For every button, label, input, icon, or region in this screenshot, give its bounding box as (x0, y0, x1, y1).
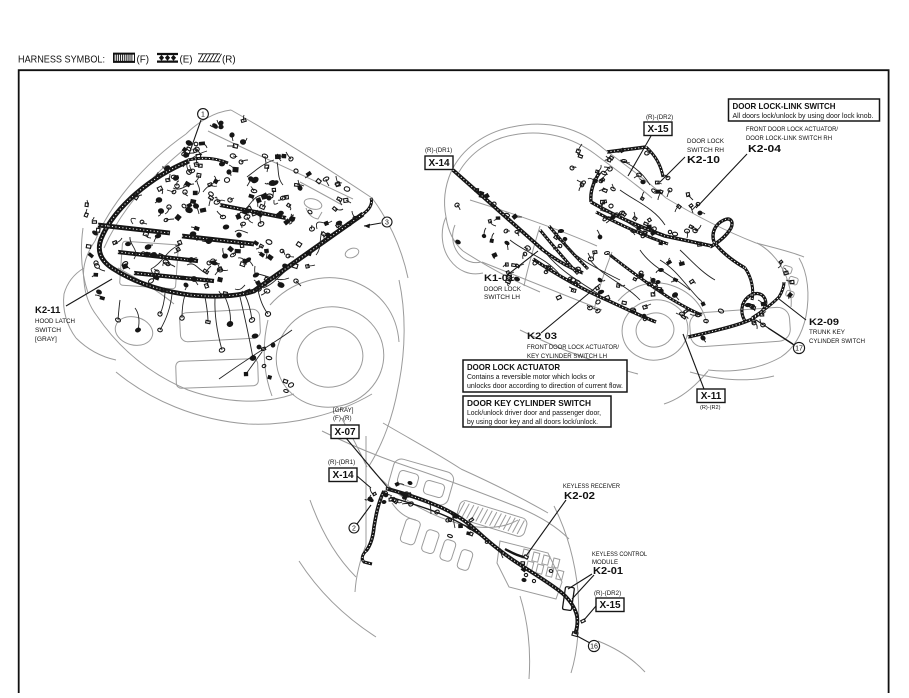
svg-text:(F)-(R): (F)-(R) (333, 415, 352, 422)
svg-text:FRONT DOOR LOCK ACTUATOR/: FRONT DOOR LOCK ACTUATOR/ (527, 344, 619, 351)
svg-text:K2-09: K2-09 (809, 317, 839, 328)
svg-text:HARNESS SYMBOL:: HARNESS SYMBOL: (18, 54, 105, 65)
svg-text:SWITCH RH: SWITCH RH (687, 147, 724, 154)
svg-text:K2-04: K2-04 (748, 143, 781, 155)
svg-text:KEYLESS RECEIVER: KEYLESS RECEIVER (563, 483, 620, 490)
svg-text:X-07: X-07 (334, 427, 356, 438)
svg-text:(R)-(DR1): (R)-(DR1) (425, 147, 452, 154)
svg-text:Contains a reversible motor wh: Contains a reversible motor which locks … (467, 374, 596, 381)
svg-text:2: 2 (352, 525, 356, 532)
svg-text:(R)-(R2): (R)-(R2) (700, 405, 721, 411)
svg-text:DOOR LOCK-LINK SWITCH: DOOR LOCK-LINK SWITCH (733, 102, 836, 111)
svg-text:K2 03: K2 03 (527, 331, 557, 342)
svg-text:[GRAY]: [GRAY] (333, 407, 354, 414)
svg-text:(R)-(DR1): (R)-(DR1) (328, 459, 355, 466)
svg-text:by using door key and all door: by using door key and all doors lock/unl… (467, 419, 598, 426)
svg-text:(R): (R) (222, 54, 236, 65)
svg-text:X-15: X-15 (647, 124, 669, 135)
svg-text:K2-11: K2-11 (35, 305, 61, 316)
svg-text:[GRAY]: [GRAY] (35, 336, 57, 343)
svg-text:17: 17 (795, 345, 803, 352)
svg-text:(F): (F) (137, 54, 150, 65)
svg-text:HOOD LATCH: HOOD LATCH (35, 318, 75, 325)
svg-text:DOOR LOCK-LINK SWITCH RH: DOOR LOCK-LINK SWITCH RH (746, 135, 832, 142)
svg-text:DOOR LOCK: DOOR LOCK (484, 286, 522, 293)
svg-text:DOOR LOCK: DOOR LOCK (687, 138, 725, 145)
svg-text:X-15: X-15 (599, 600, 621, 611)
svg-text:3: 3 (385, 219, 389, 226)
svg-text:SWITCH: SWITCH (35, 327, 61, 334)
svg-text:X-14: X-14 (428, 158, 450, 169)
svg-text:X-14: X-14 (332, 470, 354, 481)
svg-text:(R)-(DR2): (R)-(DR2) (646, 114, 673, 121)
svg-text:SWITCH LH: SWITCH LH (484, 294, 520, 301)
svg-text:All doors lock/unlock by using: All doors lock/unlock by using door lock… (733, 113, 874, 120)
svg-text:KEY CYLINDER SWITCH LH: KEY CYLINDER SWITCH LH (527, 353, 607, 360)
svg-text:CYLINDER SWITCH: CYLINDER SWITCH (809, 338, 865, 345)
svg-text:K1-01: K1-01 (484, 273, 515, 284)
svg-text:K2-01: K2-01 (593, 565, 623, 577)
svg-text:DOOR LOCK ACTUATOR: DOOR LOCK ACTUATOR (467, 363, 560, 372)
svg-text:(R)-(DR2): (R)-(DR2) (594, 590, 621, 597)
svg-text:DOOR KEY CYLINDER SWITCH: DOOR KEY CYLINDER SWITCH (467, 399, 591, 408)
svg-text:TRUNK KEY: TRUNK KEY (809, 329, 846, 336)
svg-text:16: 16 (590, 643, 598, 650)
svg-text:X-11: X-11 (701, 391, 722, 402)
svg-text:KEYLESS CONTROL: KEYLESS CONTROL (592, 551, 647, 558)
svg-text:unlocks door according to dire: unlocks door according to direction of c… (467, 383, 623, 390)
svg-text:Lock/unlock driver door and pa: Lock/unlock driver door and passenger do… (467, 410, 601, 417)
svg-text:FRONT DOOR LOCK ACTUATOR/: FRONT DOOR LOCK ACTUATOR/ (746, 126, 838, 133)
svg-text:K2-02: K2-02 (564, 490, 595, 502)
svg-text:K2-10: K2-10 (687, 154, 720, 166)
svg-text:1: 1 (201, 111, 205, 118)
svg-text:(E): (E) (180, 54, 193, 65)
